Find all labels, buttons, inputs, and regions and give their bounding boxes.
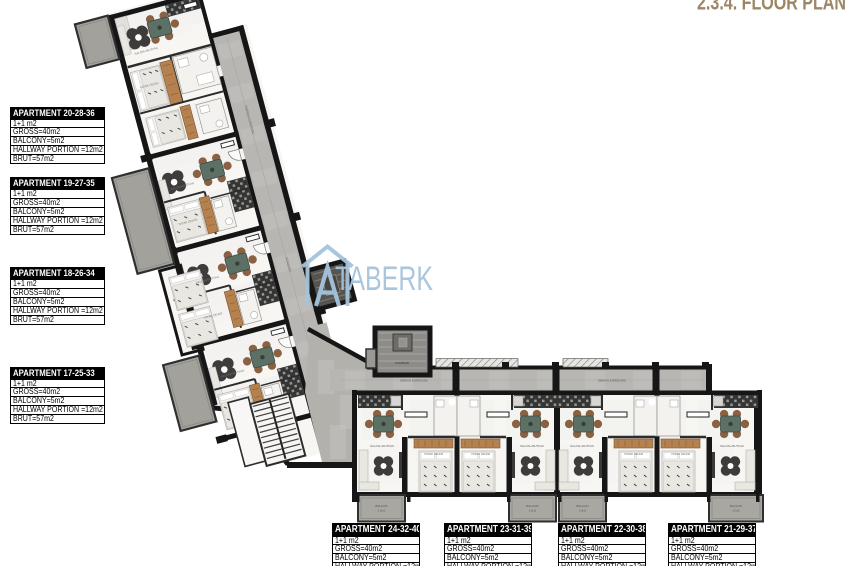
svg-text:TABERK: TABERK [335, 260, 433, 298]
svg-text:SALON+MUTFAK: SALON+MUTFAK [570, 444, 594, 448]
svg-text:ASANSOR: ASANSOR [395, 361, 409, 365]
svg-text:1.0m2: 1.0m2 [579, 509, 587, 513]
svg-text:YATAK ODASI: YATAK ODASI [424, 452, 444, 456]
svg-text:YATAK ODASI: YATAK ODASI [671, 452, 691, 456]
svg-text:1.0m2: 1.0m2 [732, 509, 740, 513]
svg-text:SALON+MUTFAK: SALON+MUTFAK [520, 444, 544, 448]
svg-text:YATAK ODASI: YATAK ODASI [624, 452, 644, 456]
svg-text:SALON+MUTFAK: SALON+MUTFAK [720, 444, 744, 448]
svg-text:SERVIS KORIDORU: SERVIS KORIDORU [598, 379, 626, 383]
svg-text:SALON+MUTFAK: SALON+MUTFAK [370, 444, 394, 448]
svg-text:SERVIS KORIDORU: SERVIS KORIDORU [400, 379, 428, 383]
svg-text:BALKON: BALKON [576, 504, 588, 508]
svg-text:1.0m2: 1.0m2 [529, 509, 537, 513]
svg-text:BALKON: BALKON [375, 504, 387, 508]
svg-text:BALKON: BALKON [526, 504, 538, 508]
svg-text:YATAK ODASI: YATAK ODASI [471, 452, 491, 456]
svg-text:BALKON: BALKON [730, 504, 742, 508]
svg-text:2.3.4. FLOOR PLAN: 2.3.4. FLOOR PLAN [697, 0, 846, 15]
svg-text:1.0m2: 1.0m2 [378, 509, 386, 513]
